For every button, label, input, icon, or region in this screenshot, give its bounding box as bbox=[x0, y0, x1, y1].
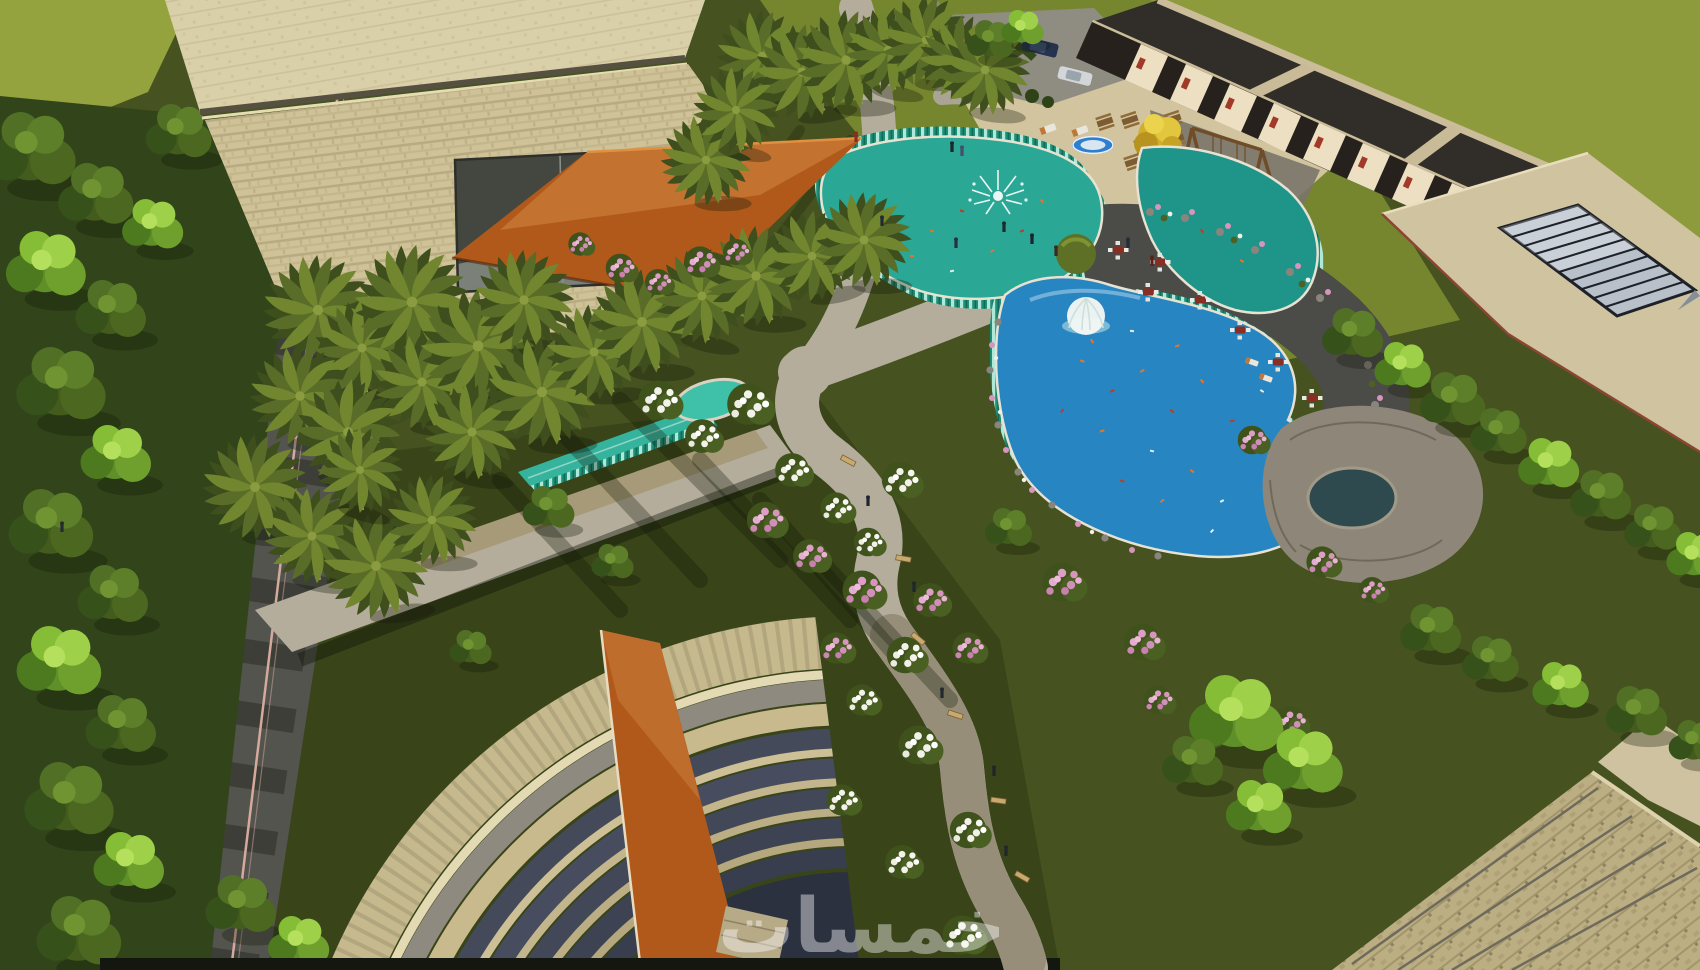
render-canvas: خمسات bbox=[0, 0, 1700, 970]
trampoline bbox=[1072, 136, 1114, 154]
grass-mound bbox=[1056, 234, 1096, 274]
watermark-text: خمسات bbox=[718, 881, 1006, 970]
